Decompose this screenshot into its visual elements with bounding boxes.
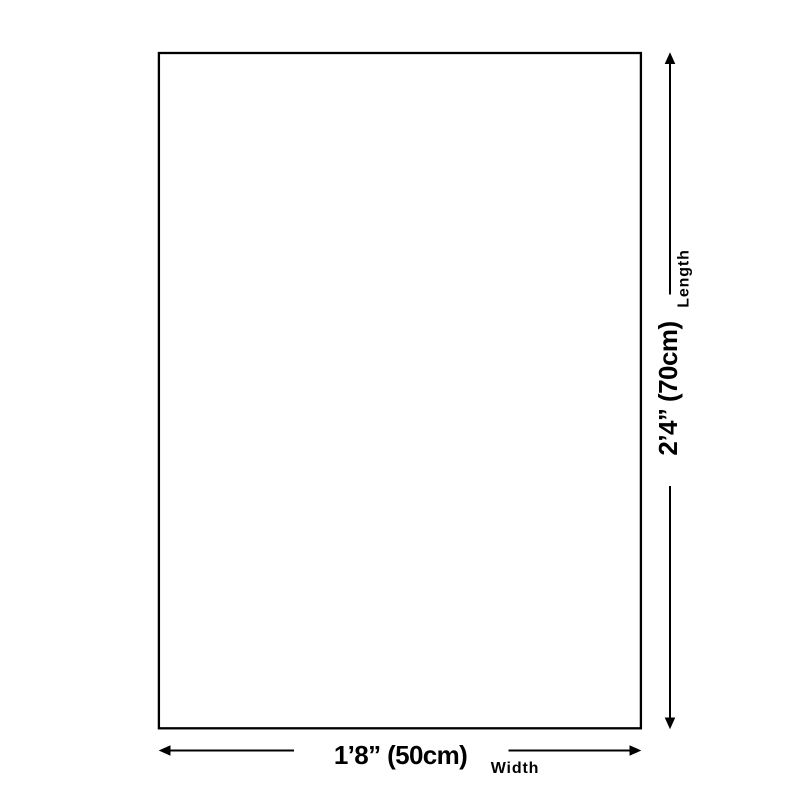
svg-text:Width: Width xyxy=(491,760,540,777)
svg-text:1’8” (50cm): 1’8” (50cm) xyxy=(334,740,467,770)
svg-text:2’4” (70cm): 2’4” (70cm) xyxy=(653,321,683,455)
svg-text:Length: Length xyxy=(676,249,693,307)
